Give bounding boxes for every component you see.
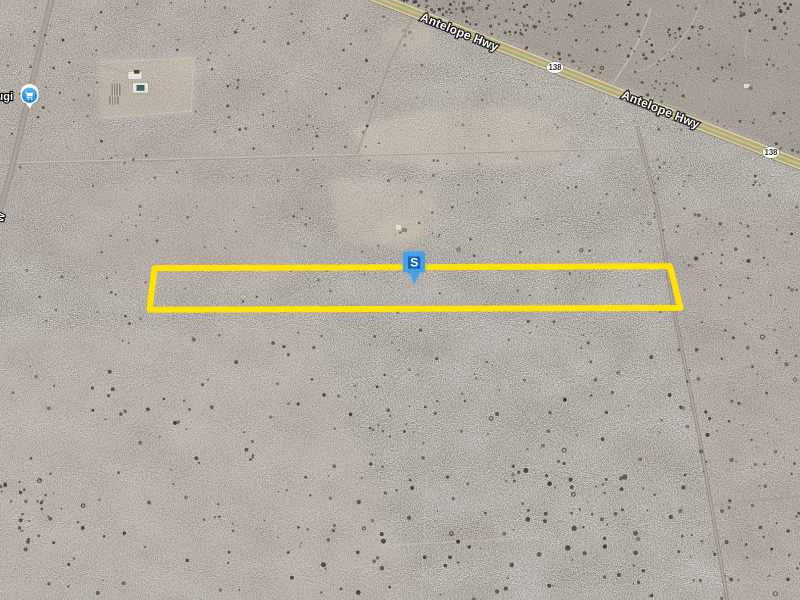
svg-text:S: S — [410, 256, 418, 270]
svg-text:138: 138 — [764, 148, 778, 157]
svg-text:138: 138 — [548, 63, 562, 72]
svg-text:ugi: ugi — [0, 91, 13, 103]
